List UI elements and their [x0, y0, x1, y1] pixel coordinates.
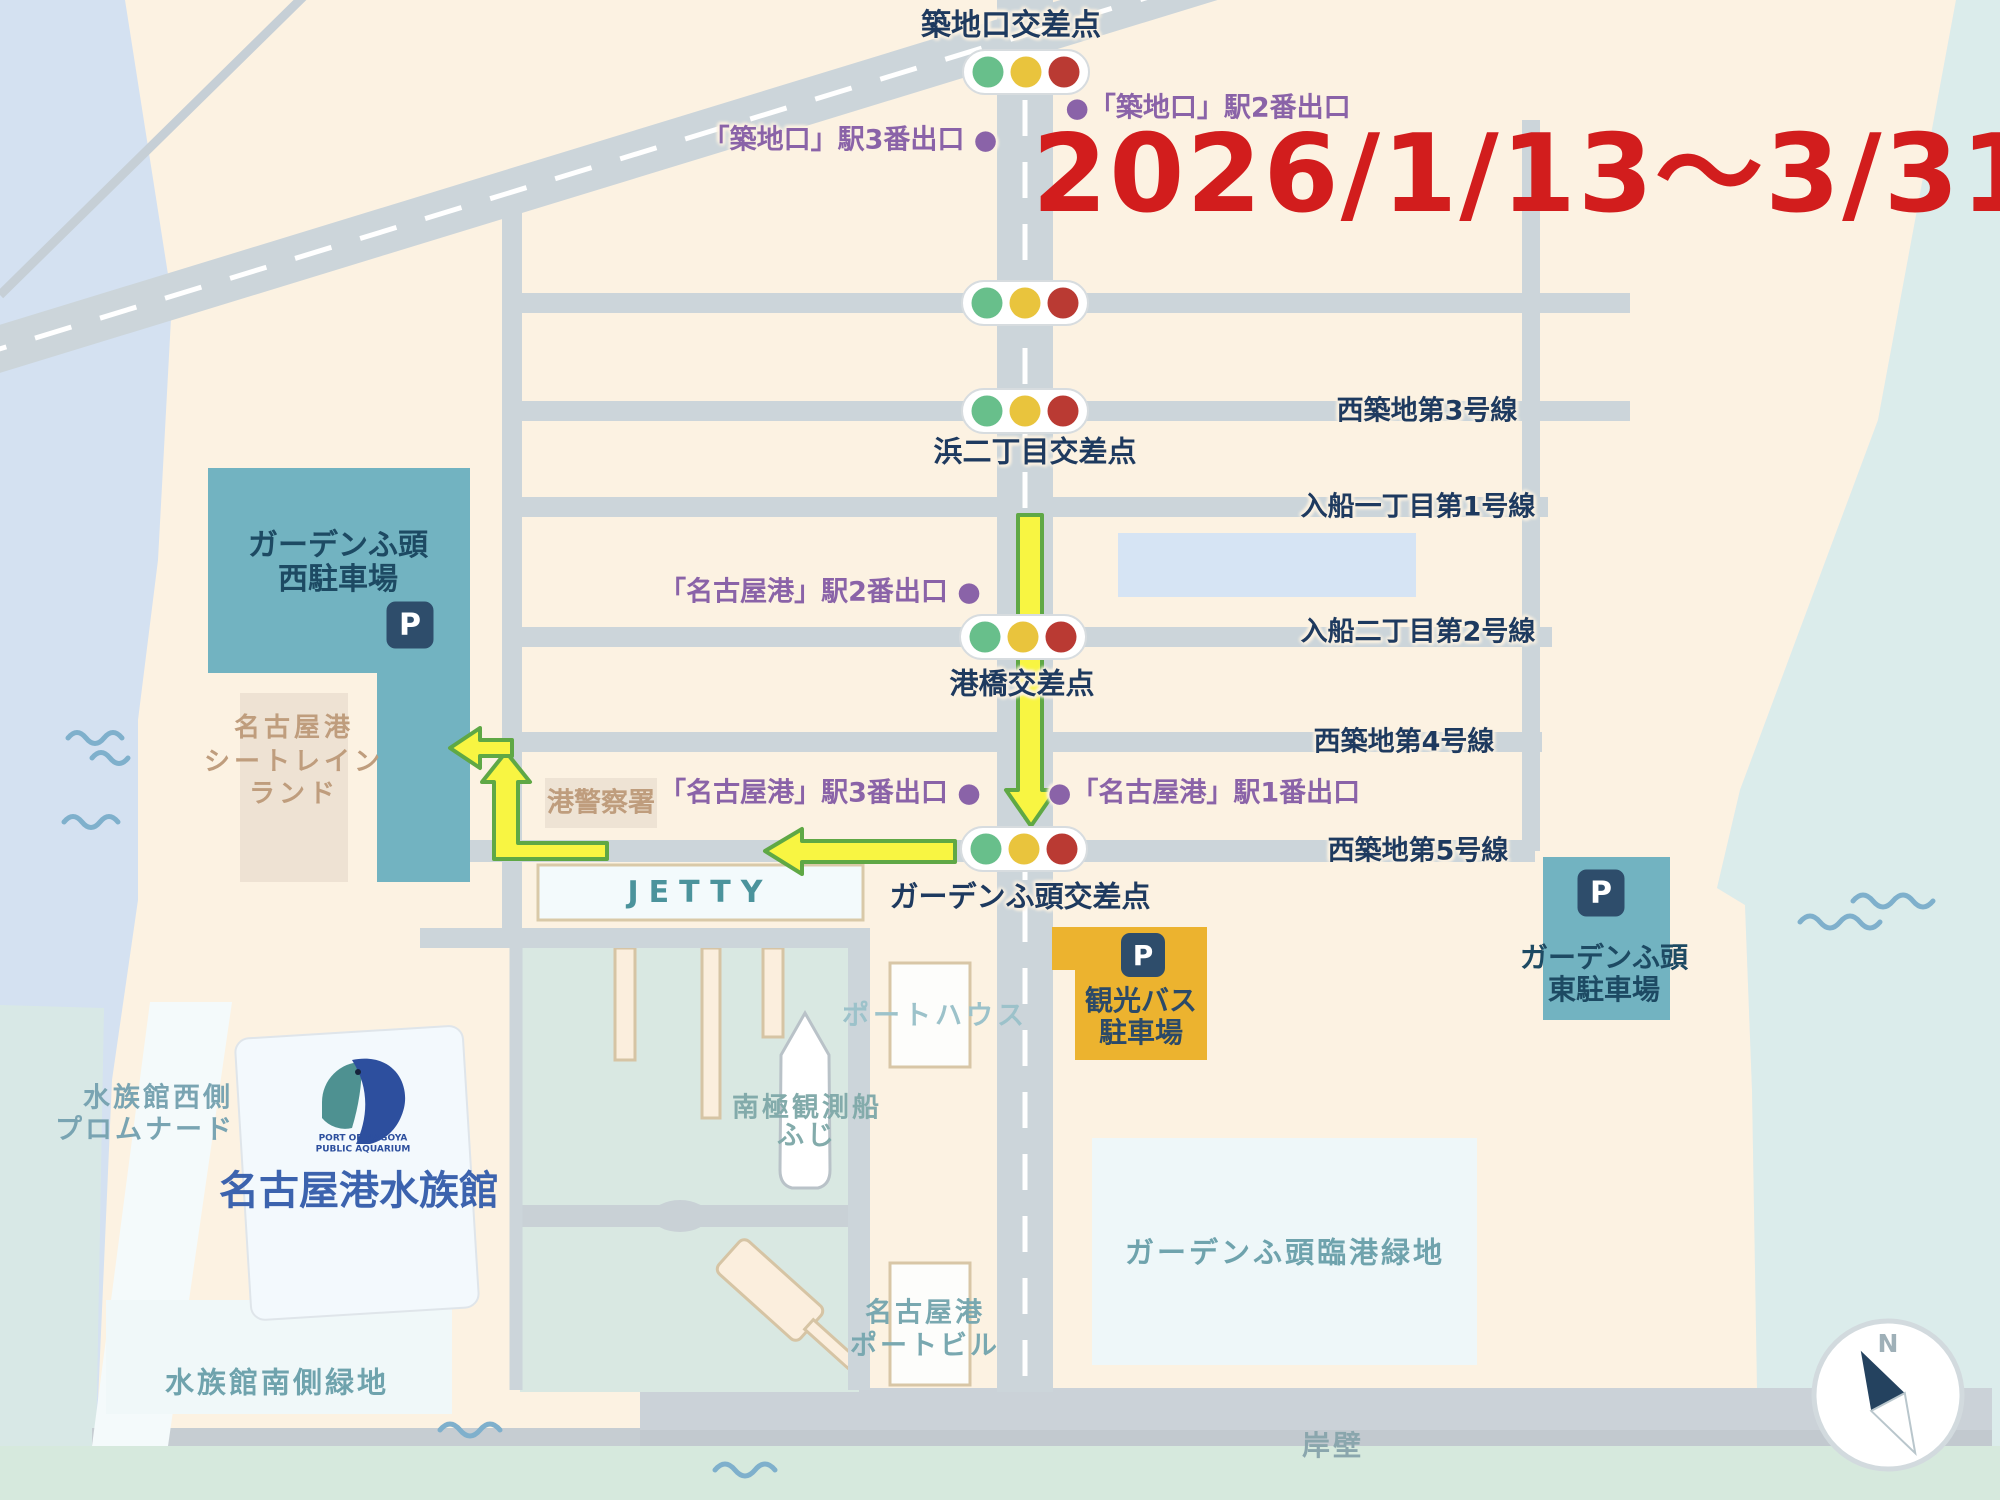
jetty-label: JETTY: [628, 878, 773, 908]
portbldg-label-2: ポートビル: [850, 1333, 1000, 1360]
intersection-label-tsukijiguchi: 築地口交差点: [921, 11, 1101, 41]
police-label: 港警察署: [547, 790, 655, 817]
quay-strip-left: [92, 1428, 640, 1446]
exit-label-tsukijiguchi-2: ●「築地口」駅2番出口: [1065, 95, 1350, 122]
west-parking-label-1: ガーデンふ頭: [248, 531, 428, 561]
basin-pier-bump: [652, 1200, 708, 1232]
exit-label-nagoyako-3: 「名古屋港」駅3番出口 ●: [659, 780, 981, 807]
intersection-label-gardenpier: ガーデンふ頭交差点: [889, 883, 1150, 912]
seatrain-label-3: ランド: [249, 781, 339, 807]
portbldg-label-1: 名古屋港: [865, 1300, 985, 1327]
exit-label-nagoyako-1: ●「名古屋港」駅1番出口: [1048, 780, 1360, 807]
fuji-label-2: ふじ: [777, 1123, 837, 1150]
road-label-nishitsukiji4: 西築地第4号線: [1314, 729, 1495, 756]
aquarium-name-label: 名古屋港水族館: [219, 1171, 499, 1211]
east-parking-p-icon: P: [1578, 870, 1625, 917]
aquarium-logo-sub-1: PORT OF NAGOYA: [319, 1135, 408, 1144]
porthouse-label: ポートハウス: [842, 1003, 1028, 1030]
road-label-irifune1: 入船一丁目第1号線: [1301, 494, 1536, 521]
rinko-green-label: ガーデンふ頭臨港緑地: [1125, 1239, 1445, 1268]
aquarium-logo-sub-2: PUBLIC AQUARIUM: [316, 1146, 411, 1155]
quay: [640, 1388, 1992, 1432]
traffic-light-minatobashi: [960, 615, 1086, 659]
sea-south: [0, 1446, 2000, 1500]
exit-label-tsukijiguchi-3: 「築地口」駅3番出口 ●: [703, 127, 998, 154]
intersection-label-minatobashi: 港橋交差点: [949, 670, 1094, 699]
compass: N: [1814, 1321, 1962, 1469]
south-green-label: 水族館南側緑地: [165, 1369, 389, 1398]
promenade-label-1: 水族館西側: [83, 1085, 233, 1112]
bus-parking-label-1: 観光バス: [1085, 987, 1197, 1015]
period-banner: 2026/1/13～3/31: [1032, 121, 2000, 229]
exit-label-nagoyako-2: 「名古屋港」駅2番出口 ●: [659, 579, 981, 606]
fuji-label-1: 南極観測船: [732, 1095, 882, 1122]
east-parking-label-1: ガーデンふ頭: [1520, 944, 1688, 972]
access-map: N 2026/1/13～3/31 築地口交差点 浜二丁目交差点 港橋交差点 ガー…: [0, 0, 2000, 1500]
compass-n-label: N: [1878, 1329, 1899, 1358]
seatrain-label-1: 名古屋港: [234, 715, 354, 741]
bus-parking-p-icon: P: [1121, 933, 1165, 977]
traffic-light-gardenpier: [961, 827, 1087, 871]
seatrain-label-2: シートレイン: [204, 749, 384, 775]
road-label-nishitsukiji5: 西築地第5号線: [1328, 838, 1509, 865]
traffic-light-2: [962, 281, 1088, 325]
road-label-irifune2: 入船二丁目第2号線: [1301, 619, 1536, 646]
promenade-label-2: プロムナード: [55, 1117, 235, 1144]
intersection-label-hamani: 浜二丁目交差点: [933, 438, 1136, 467]
quay-label: 岸壁: [1302, 1432, 1364, 1460]
bus-parking-label-2: 駐車場: [1099, 1019, 1183, 1047]
west-parking-p-icon: P: [387, 602, 434, 649]
water-inlet: [1118, 533, 1416, 597]
sea-southwest: [0, 1005, 104, 1448]
road-label-nishitsukiji3: 西築地第3号線: [1337, 398, 1518, 425]
east-parking-label-2: 東駐車場: [1548, 976, 1660, 1004]
traffic-light-tsukijiguchi: [963, 50, 1089, 94]
traffic-light-hamani: [962, 389, 1088, 433]
west-parking-label-2: 西駐車場: [278, 565, 398, 595]
